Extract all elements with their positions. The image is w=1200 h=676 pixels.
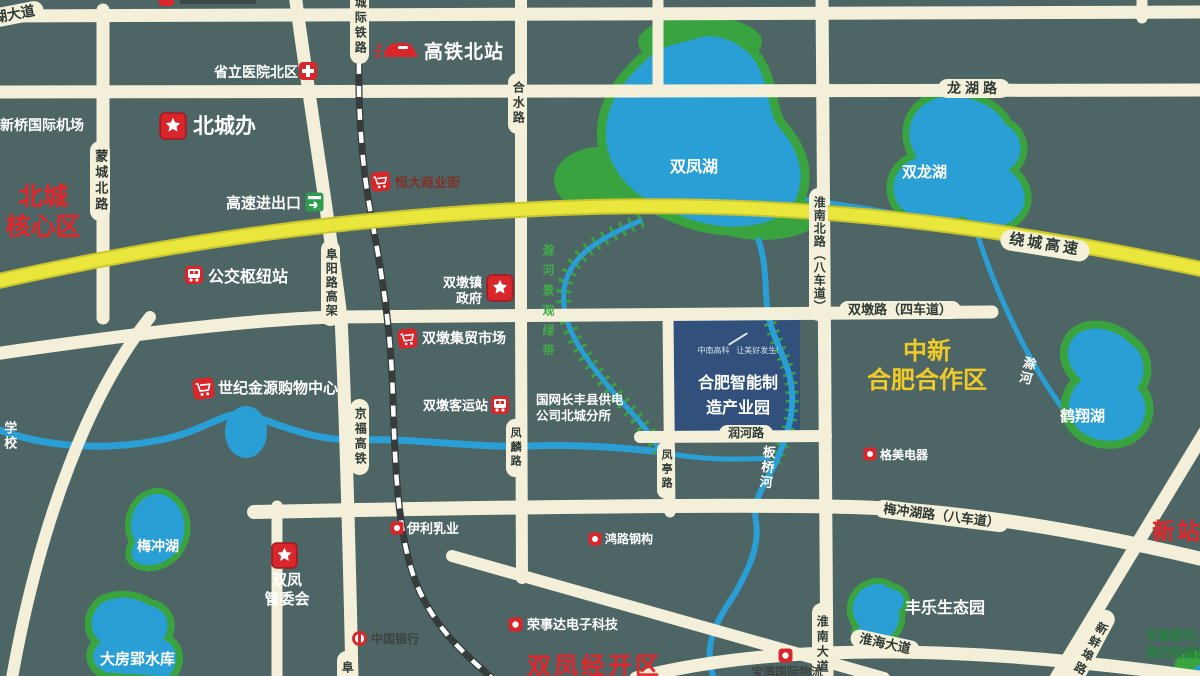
poi-line: 双凤 bbox=[258, 572, 316, 591]
cart-icon bbox=[396, 327, 419, 350]
road-label-longhu: 龙湖路 bbox=[938, 79, 1010, 98]
star-icon bbox=[486, 274, 514, 302]
park-logo-text: 中南高科 bbox=[698, 346, 730, 355]
lake-label-meichong: 梅冲湖 bbox=[137, 538, 179, 556]
river-pond bbox=[225, 406, 267, 458]
poi-shiji-jinyuan: 世纪金源购物中心 bbox=[218, 380, 338, 399]
poi-line: 公司北城分所 bbox=[536, 408, 624, 424]
park-name-line: 合肥智能制 bbox=[676, 372, 800, 397]
poi-line: 管委会 bbox=[258, 591, 316, 610]
poi-yili: 伊利乳业 bbox=[407, 521, 459, 537]
poi-beichengban: 北城办 bbox=[193, 114, 256, 140]
railway-label-chengji: 城际铁路 bbox=[350, 0, 369, 64]
poi-shuangdun-gov: 双墩镇 政府 bbox=[428, 275, 482, 308]
road-label-huainanbei: 淮南北路（八车道） bbox=[809, 188, 828, 321]
meichong-lake bbox=[128, 491, 188, 569]
lake-label-hexiang: 鹤翔湖 bbox=[1060, 408, 1105, 427]
bus-icon bbox=[184, 265, 204, 285]
railway-label-jingfu: 京福高铁 bbox=[350, 399, 369, 475]
tourist-area-map: 北城 核心区 中新 合肥合作区 新站区 双凤经开区 中南高科 让美好发生! 合肥… bbox=[0, 0, 1200, 676]
dot-icon bbox=[588, 532, 602, 546]
bank-icon bbox=[351, 630, 368, 647]
region-beicheng-core: 北城 核心区 bbox=[2, 182, 84, 242]
poi-gemei: 格美电器 bbox=[880, 448, 928, 463]
clipped-poi-icon bbox=[159, 0, 174, 6]
poi-line: 双墩镇 bbox=[428, 275, 482, 291]
hexiang-lake bbox=[1064, 325, 1150, 445]
poi-line: 安徽医科大学 bbox=[1146, 628, 1200, 645]
region-xinzhan: 新站区 bbox=[1152, 518, 1200, 546]
poi-shuangfeng-mgmt: 双凤 管委会 bbox=[258, 572, 316, 610]
expressway-entrance-icon bbox=[305, 192, 324, 212]
lake-label-dafangying: 大房郢水库 bbox=[100, 651, 175, 670]
region-line: 北城 bbox=[2, 182, 84, 212]
park-name: 合肥智能制 造产业园 bbox=[676, 372, 800, 422]
road-label-runhe: 润河路 bbox=[719, 425, 773, 442]
region-zhongxin-coop: 中新 合肥合作区 bbox=[832, 338, 1022, 396]
dot-icon bbox=[508, 617, 523, 632]
lake-label-shuangfeng: 双凤湖 bbox=[670, 158, 718, 178]
cart-icon bbox=[191, 376, 216, 401]
park-name-line: 造产业园 bbox=[676, 397, 800, 422]
region-shuangfeng-edz: 双凤经开区 bbox=[527, 653, 662, 676]
poi-provincial-hospital: 省立医院北区 bbox=[214, 64, 298, 82]
region-line: 合肥合作区 bbox=[832, 367, 1022, 396]
cart-icon bbox=[369, 170, 392, 193]
poi-line: 第四附属医院 bbox=[1146, 645, 1200, 662]
poi-fengle-park: 丰乐生态园 bbox=[905, 599, 985, 619]
poi-jimao-market: 双墩集贸市场 bbox=[422, 330, 506, 348]
poi-guowang: 国网长丰县供电 公司北城分所 bbox=[536, 392, 624, 425]
road-label-fenglin: 凤麟路 bbox=[506, 419, 524, 477]
dot-icon bbox=[778, 648, 793, 663]
shuanglong-lake bbox=[890, 93, 1028, 230]
poi-keyun-station: 双墩客运站 bbox=[423, 398, 488, 414]
hospital-icon bbox=[298, 61, 318, 81]
expwy-entrance-label: 高速进出口 bbox=[226, 195, 301, 214]
poi-line: 政府 bbox=[428, 291, 482, 307]
star-icon bbox=[159, 112, 187, 140]
poi-school: 学校 bbox=[1, 421, 17, 451]
region-line: 核心区 bbox=[2, 212, 84, 242]
poi-honglu: 鸿路钢构 bbox=[605, 532, 653, 547]
poi-baowan: 宝湾国际物流 bbox=[751, 665, 823, 676]
road-label-fuyang-viaduct: 阜阳路高架 bbox=[321, 240, 340, 326]
region-line: 中新 bbox=[832, 338, 1022, 367]
greenway-label: 滁河景观绿带 bbox=[540, 244, 555, 364]
park-logo: 中南高科 让美好发生! bbox=[676, 336, 800, 356]
bus-icon bbox=[490, 395, 510, 415]
train-icon bbox=[374, 36, 418, 64]
poi-anhui-hospital: 安徽医科大学 第四附属医院 bbox=[1146, 628, 1200, 662]
stream-connector bbox=[660, 452, 770, 459]
road-label-fengting: 凤亭路 bbox=[657, 441, 675, 499]
lake-label-shuanglong: 双龙湖 bbox=[902, 164, 947, 183]
poi-xinqiao-airport: 新桥国际机场 bbox=[0, 117, 84, 135]
poi-boc: 中国银行 bbox=[371, 632, 419, 647]
dot-icon bbox=[390, 521, 404, 535]
road-label-mengchengbei: 蒙城北路 bbox=[90, 141, 110, 221]
poi-bus-hub: 公交枢纽站 bbox=[208, 268, 288, 288]
park-slogan: 让美好发生! bbox=[736, 346, 778, 355]
clipped-poi-text bbox=[180, 0, 256, 4]
poi-hengda-street: 恒大商业街 bbox=[395, 175, 460, 191]
road-label-heshui: 合水路 bbox=[508, 73, 527, 134]
poi-rongshida: 荣事达电子科技 bbox=[527, 617, 618, 633]
road-label-shuangdun: 双墩路（四车道） bbox=[839, 301, 961, 319]
poi-hsr-north-station: 高铁北站 bbox=[424, 41, 504, 65]
star-icon bbox=[271, 542, 298, 569]
dot-icon bbox=[863, 447, 877, 461]
road-label-fuyang-partial: 阜 bbox=[337, 651, 356, 676]
poi-line: 国网长丰县供电 bbox=[536, 392, 624, 408]
